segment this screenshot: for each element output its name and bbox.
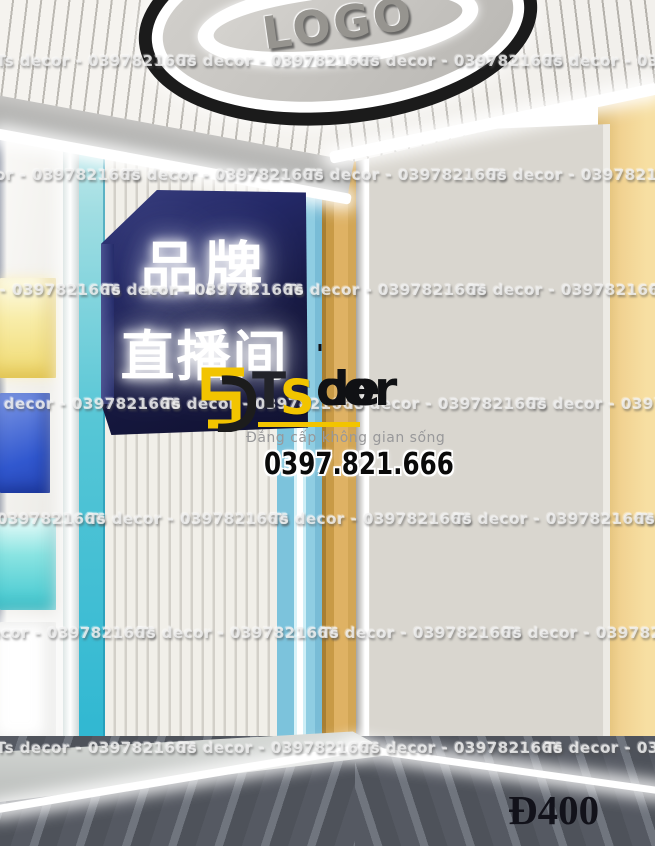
shelf-niche-teal [0,518,56,610]
shelf-niche-yellow [0,278,56,378]
brand-tagline: Đẳng cấp không gian sống [246,430,482,446]
brand-name-after: cor [316,362,396,417]
price-label: Đ400 [508,786,648,834]
slat-wall-top-glow [105,126,277,172]
vertical-led-strip [63,98,79,750]
ts-decor-brand-block: T S de'cor Đẳng cấp không gian sống 0397… [192,360,482,485]
shelf-niche-white [0,622,56,740]
brand-underline [258,422,360,427]
brand-letter-s: S [280,370,315,426]
shelf-niche-blue [0,393,50,493]
ceiling-ring-light: LOGO [129,0,548,144]
render-canvas: LOGO 品牌 直播间 Ts decor - 0397821666Ts deco… [0,0,655,846]
watermark-text: Ts decor - 0397821666 [545,52,655,70]
sign-text-line1: 品牌 [101,222,308,306]
teal-accent-panel [79,98,105,750]
brand-phone: 0397.821.666 [264,447,454,482]
ts-decor-logo-mark [192,364,256,432]
display-shelf-column [0,90,63,750]
